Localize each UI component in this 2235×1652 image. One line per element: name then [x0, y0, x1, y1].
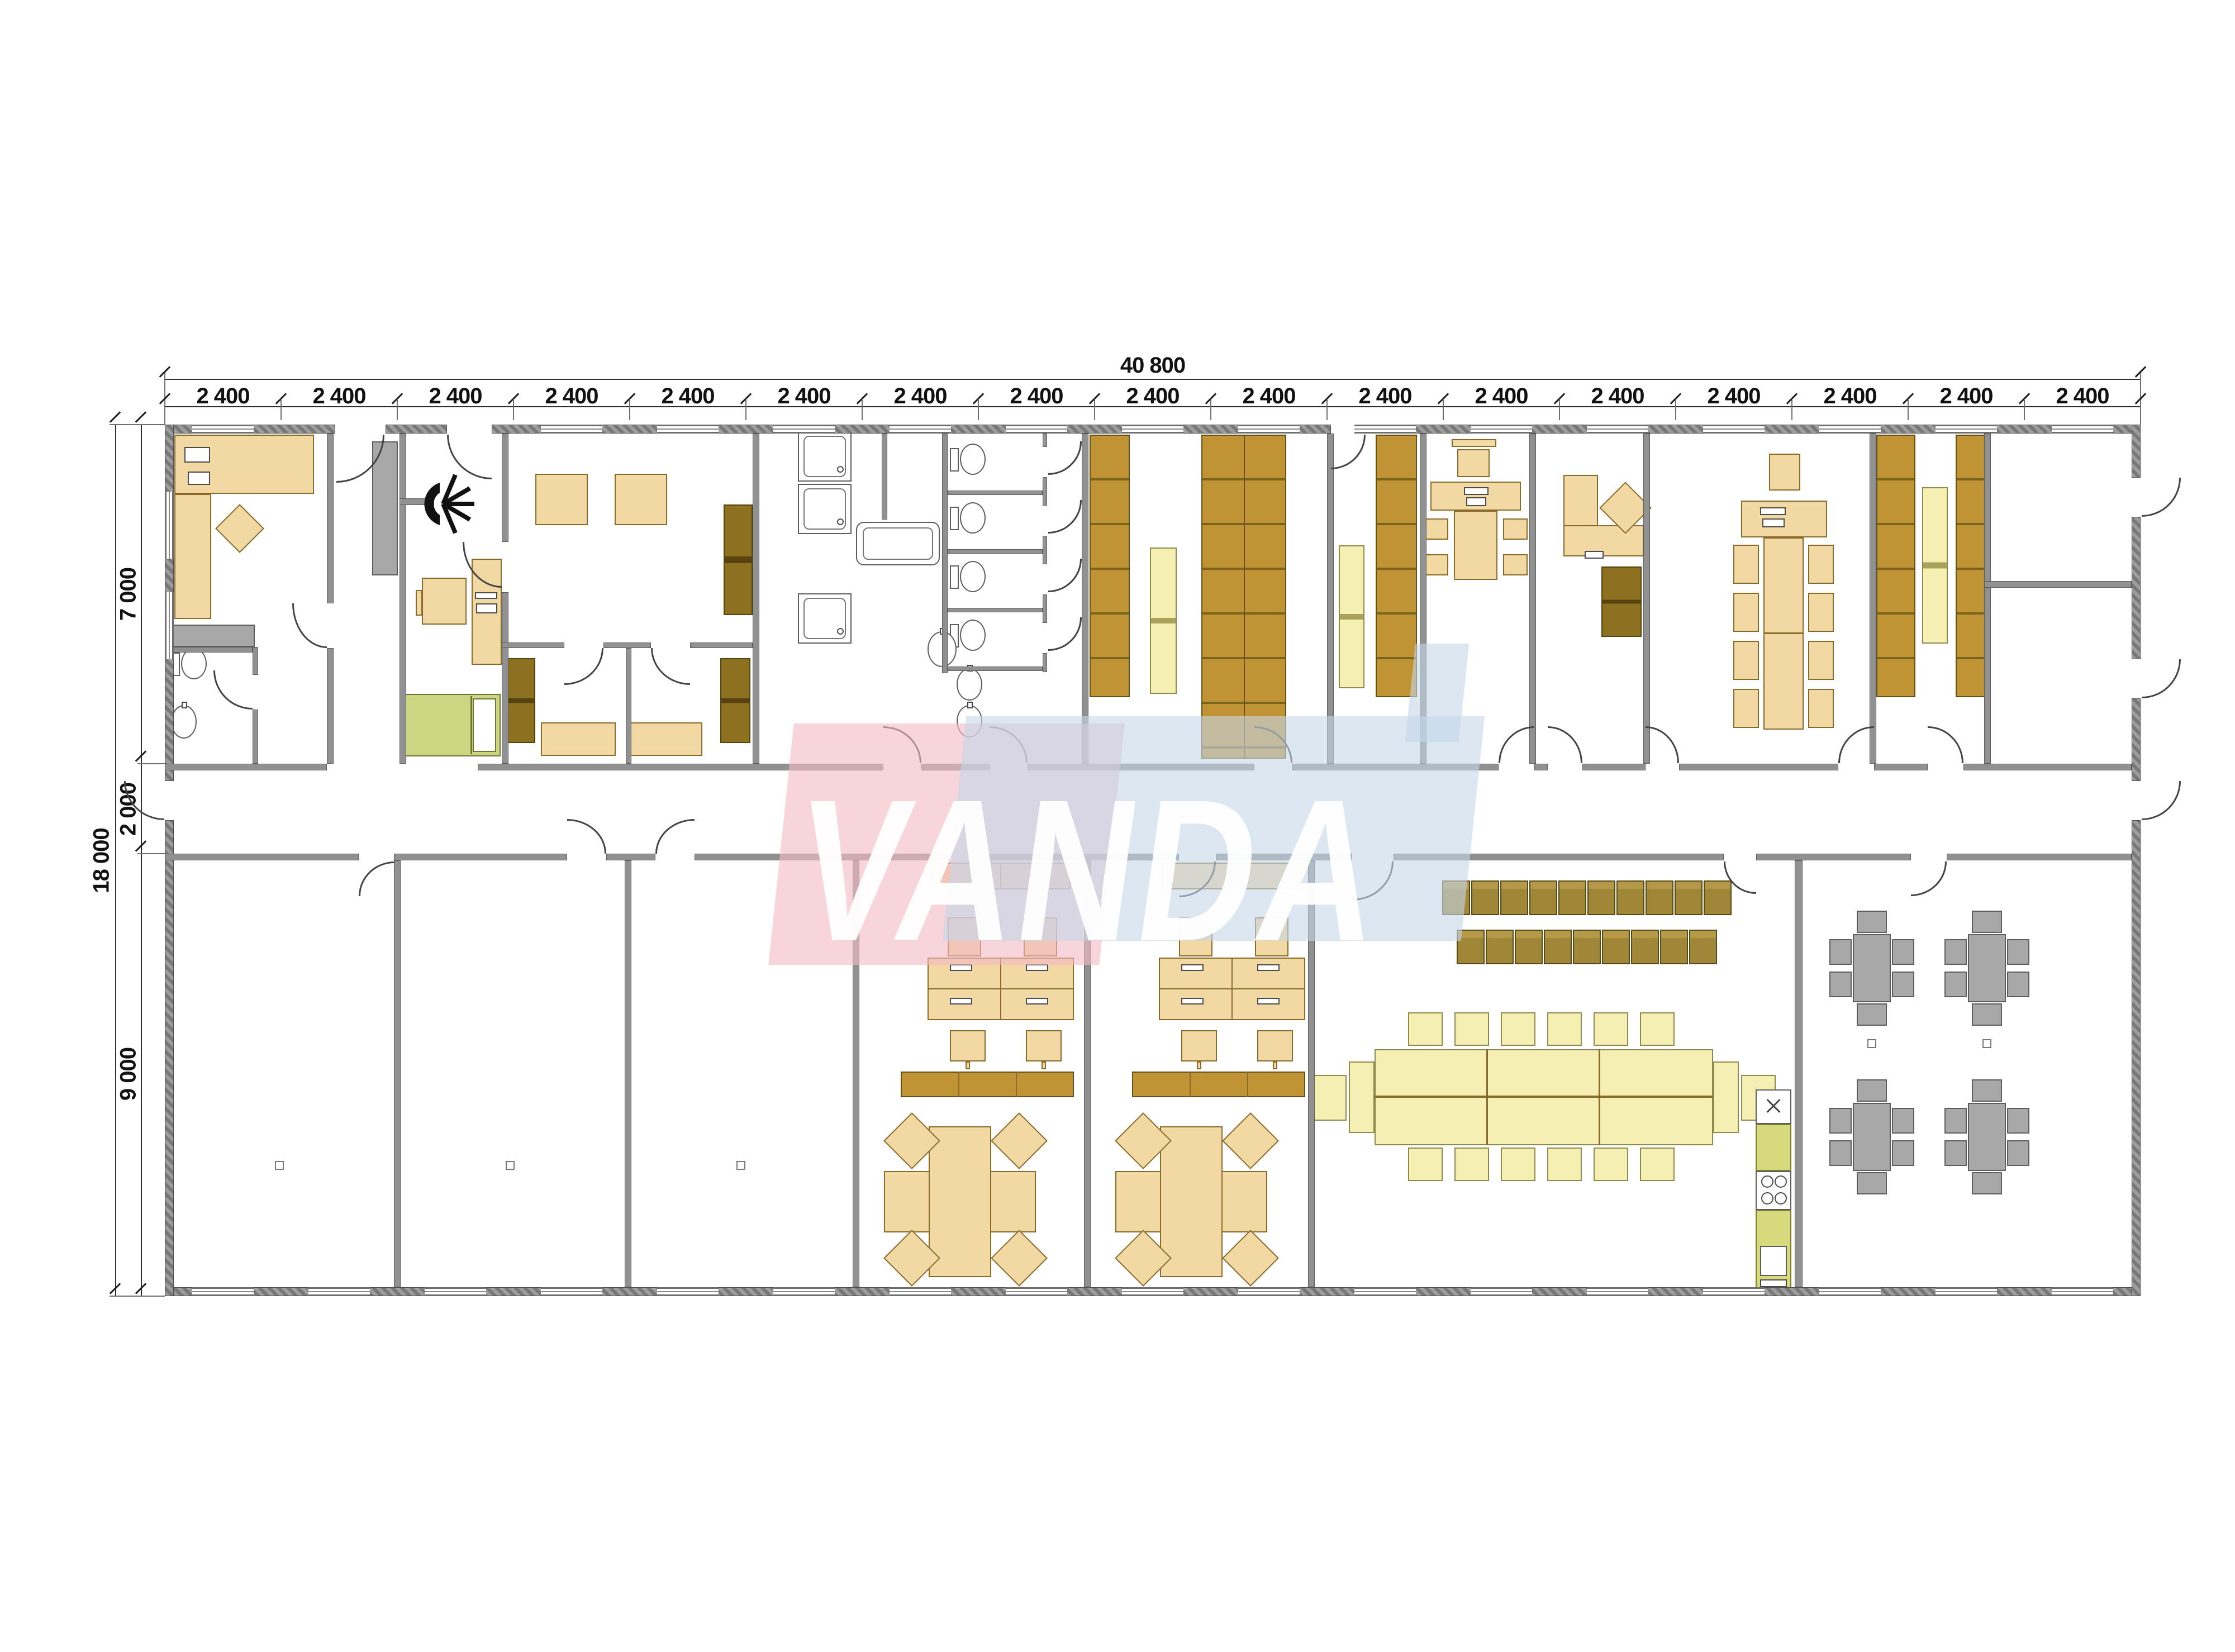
- chair: [1547, 1012, 1582, 1046]
- dimension-left-seg3-label: 9 000: [116, 1018, 141, 1130]
- training-chair: [1573, 930, 1601, 964]
- interior-wall: [327, 648, 334, 764]
- dimension-extension: [513, 400, 514, 420]
- chair: [1892, 1108, 1914, 1134]
- dimension-extension: [164, 400, 165, 420]
- chair: [1829, 972, 1852, 997]
- dimension-module-label: 2 400: [1930, 384, 2003, 406]
- training-chair: [1558, 880, 1586, 915]
- interior-wall: [1870, 434, 1876, 764]
- door-arc: [292, 603, 327, 648]
- dimension-module-label: 2 400: [187, 384, 259, 406]
- shower-drain-icon: [837, 628, 844, 635]
- door-arc: [1911, 861, 1947, 896]
- dimension-extension: [280, 400, 282, 420]
- interior-wall: [948, 549, 1043, 554]
- dimension-left-total-label: 18 000: [89, 805, 115, 917]
- interior-wall: [625, 860, 631, 1287]
- chair: [1857, 1003, 1887, 1026]
- table: [627, 722, 702, 756]
- floor-drain: [1982, 1039, 1991, 1048]
- keyboard-icon: [1466, 497, 1486, 506]
- keyboard-icon: [1585, 551, 1604, 559]
- door-arc: [1048, 500, 1082, 534]
- chair: [991, 1230, 1048, 1287]
- window: [2052, 425, 2113, 434]
- dining-table: [1853, 934, 1891, 1002]
- chair: [1769, 454, 1800, 491]
- monitor-icon: [475, 592, 497, 599]
- interior-wall: [165, 647, 253, 653]
- window: [1587, 1287, 1648, 1296]
- sofa: [1601, 566, 1642, 637]
- toilet-tank: [950, 565, 959, 589]
- interior-wall: [253, 710, 258, 764]
- kitchen-sink: [1760, 1246, 1787, 1276]
- interior-wall: [948, 608, 1043, 612]
- vent-icon: [1760, 1279, 1787, 1287]
- exterior-wall: [165, 820, 174, 1296]
- chair: [1972, 911, 2002, 933]
- training-chair: [1529, 880, 1557, 915]
- chair: [1424, 554, 1448, 575]
- chair: [1944, 1140, 1967, 1166]
- chair: [1857, 1079, 1887, 1102]
- floor-drain: [275, 1161, 284, 1170]
- side-table: [422, 578, 467, 625]
- printer-icon: [184, 447, 210, 463]
- keyboard-icon: [1762, 518, 1785, 527]
- chair: [1547, 1148, 1582, 1181]
- desk-l-bottom: [1563, 525, 1644, 556]
- table: [541, 722, 616, 756]
- dimension-extension: [745, 400, 746, 420]
- floor-drain: [506, 1161, 515, 1170]
- chair: [1501, 1148, 1535, 1181]
- tap-icon: [967, 702, 973, 708]
- toilet-bowl: [960, 502, 986, 534]
- training-chair: [1631, 930, 1659, 964]
- desk-l-side: [174, 494, 211, 619]
- training-chair: [1486, 930, 1514, 964]
- window: [890, 425, 951, 434]
- credenza-divider: [1190, 1072, 1191, 1097]
- window: [657, 425, 719, 434]
- chair: [1944, 939, 1967, 965]
- tap-icon: [182, 702, 187, 708]
- chair: [1222, 1112, 1279, 1169]
- exterior-wall: [2132, 517, 2141, 659]
- chair: [1640, 1148, 1675, 1181]
- dimension-extension: [1210, 400, 1211, 420]
- dimension-module-label: 2 400: [1000, 384, 1073, 406]
- chair: [1457, 449, 1490, 477]
- dimension-ext-topleft: [110, 424, 165, 425]
- dimension-module-label: 2 400: [652, 384, 724, 406]
- credenza-divider: [1016, 1072, 1017, 1097]
- door-arc: [1928, 726, 1963, 763]
- chair: [1312, 1075, 1347, 1121]
- interior-wall: [327, 434, 334, 603]
- bed-fold: [470, 696, 472, 754]
- burner-icon: [1761, 1192, 1773, 1205]
- training-chair: [1646, 880, 1673, 915]
- door-arc: [655, 819, 695, 854]
- burner-icon: [1775, 1175, 1787, 1188]
- window: [1238, 1287, 1300, 1296]
- dining-table: [1968, 934, 2006, 1002]
- interior-wall: [1529, 434, 1536, 764]
- chair: [1222, 1230, 1279, 1287]
- chair: [1640, 1012, 1675, 1046]
- chair: [416, 590, 422, 616]
- chair: [1733, 641, 1759, 680]
- computer-icon: [188, 472, 210, 485]
- interior-wall: [394, 854, 567, 860]
- window: [165, 592, 174, 659]
- window: [1238, 425, 1300, 434]
- exterior-wall: [2132, 425, 2141, 478]
- training-chair: [1689, 930, 1717, 964]
- credenza-divider: [1247, 1072, 1248, 1097]
- dimension-module-label: 2 400: [303, 384, 375, 406]
- dimension-module-label: 2 400: [1233, 384, 1305, 406]
- credenza-divider: [958, 1072, 959, 1097]
- window: [1471, 1287, 1532, 1296]
- pinwheel-desk: [929, 1126, 991, 1277]
- toilet-bowl: [181, 648, 207, 679]
- window: [541, 1287, 602, 1296]
- interior-wall: [1043, 477, 1047, 506]
- chair: [1501, 1012, 1535, 1046]
- chair: [1829, 1140, 1852, 1166]
- interior-wall: [394, 860, 401, 1287]
- chair: [1857, 1172, 1887, 1194]
- dimension-ext-midleft2: [137, 853, 165, 854]
- interior-wall: [1963, 764, 2132, 770]
- dimension-ext-midleft1: [137, 763, 165, 764]
- toilet-tank: [950, 507, 959, 530]
- dimension-module-label: 2 400: [419, 384, 492, 406]
- window: [1122, 425, 1183, 434]
- interior-wall: [1043, 434, 1047, 447]
- dimension-module-label: 2 400: [1465, 384, 1538, 406]
- sofa: [505, 658, 535, 743]
- chair: [1454, 1148, 1489, 1181]
- monitor-icon: [1464, 487, 1489, 495]
- monitor-stand: [1197, 1061, 1201, 1069]
- door-arc: [1548, 726, 1582, 763]
- keyboard-icon: [476, 603, 497, 613]
- dimension-module-label: 2 400: [1697, 384, 1770, 406]
- window: [1587, 425, 1648, 434]
- door-arc: [2142, 659, 2181, 698]
- chair: [2007, 972, 2029, 997]
- interior-wall: [253, 647, 258, 675]
- window: [1006, 425, 1067, 434]
- desk: [1430, 482, 1521, 511]
- window: [1703, 425, 1765, 434]
- chair: [1424, 518, 1448, 540]
- interior-wall: [1874, 764, 1928, 770]
- window: [192, 1287, 254, 1296]
- training-chair: [1544, 930, 1572, 964]
- long-table-end: [1349, 1061, 1375, 1133]
- window: [2052, 1287, 2113, 1296]
- monitor-table: [950, 1030, 986, 1061]
- chair: [1808, 641, 1834, 680]
- window: [1354, 425, 1416, 434]
- dimension-module-label: 2 400: [1349, 384, 1421, 406]
- interior-wall: [1679, 764, 1838, 770]
- training-chair: [1602, 930, 1630, 964]
- dimension-module-label: 2 400: [768, 384, 840, 406]
- exterior-wall: [386, 425, 447, 434]
- shelf-unit: [1376, 435, 1417, 697]
- bench: [1339, 545, 1364, 688]
- monitor-stand: [1042, 1061, 1046, 1069]
- window: [1819, 425, 1881, 434]
- dimension-ext-botleft: [110, 1296, 165, 1297]
- shower-drain-icon: [837, 518, 844, 525]
- chair: [1503, 518, 1528, 540]
- door-arc: [1048, 617, 1082, 651]
- dimension-extension: [1791, 400, 1792, 420]
- door-arc: [1838, 726, 1874, 763]
- chair: [1808, 545, 1834, 584]
- dimension-extension: [1675, 400, 1676, 420]
- chair: [1972, 1079, 2002, 1102]
- dimension-extension: [1559, 400, 1560, 420]
- monitor-table: [1257, 1030, 1293, 1061]
- chair: [2007, 939, 2029, 965]
- bench: [1922, 487, 1948, 644]
- monitor-icon: [1760, 507, 1786, 515]
- interior-wall: [1043, 653, 1047, 672]
- office-chair: [215, 504, 264, 553]
- training-chair: [1704, 880, 1732, 915]
- chair: [1829, 1108, 1852, 1134]
- door-arc: [1646, 726, 1679, 763]
- table-divider: [1375, 1096, 1713, 1098]
- window: [425, 1287, 486, 1296]
- window: [1006, 1287, 1067, 1296]
- window: [890, 1287, 951, 1296]
- door-arc: [1499, 726, 1534, 763]
- chair: [1892, 1140, 1914, 1166]
- dining-table: [1968, 1103, 2006, 1171]
- bed-pillow: [473, 698, 496, 752]
- door-arc: [2142, 478, 2181, 517]
- interior-wall: [1756, 854, 1911, 860]
- dimension-extension: [1908, 400, 1909, 420]
- interior-wall: [1327, 434, 1334, 764]
- dimension-extension: [1443, 400, 1444, 420]
- dimension-extension: [862, 400, 863, 420]
- interior-wall: [690, 642, 753, 648]
- dimension-module-label: 2 400: [884, 384, 957, 406]
- long-table-end: [1713, 1061, 1739, 1133]
- sofa: [724, 504, 753, 615]
- interior-wall: [502, 642, 564, 648]
- dimension-top-total-label: 40 800: [1086, 353, 1220, 378]
- sink: [957, 668, 982, 701]
- dimension-tick: [135, 411, 147, 423]
- exterior-wall: [2132, 698, 2141, 781]
- dimension-extension: [1326, 400, 1328, 420]
- window: [1471, 425, 1532, 434]
- watermark-blue-block: [1405, 644, 1469, 742]
- light-fixture-icon: [411, 470, 478, 537]
- window: [1703, 1287, 1765, 1296]
- table: [535, 474, 588, 525]
- training-chair: [1471, 880, 1499, 915]
- pinwheel-desk: [1160, 1126, 1223, 1277]
- window: [773, 1287, 835, 1296]
- door-arc: [1331, 435, 1366, 469]
- shelf-unit: [1201, 435, 1286, 759]
- door-arc: [567, 819, 606, 854]
- monitor-table: [1026, 1030, 1062, 1061]
- floor-drain: [1867, 1039, 1876, 1048]
- desk-divider: [1159, 988, 1305, 989]
- floor-plan-canvas: 40 800 18 000 7 000 2 000 9 000 VANDA 2 …: [0, 0, 2235, 1652]
- dimension-module-label: 2 400: [535, 384, 608, 406]
- window: [1354, 1287, 1416, 1296]
- interior-wall: [1043, 536, 1047, 564]
- door-arc: [651, 648, 690, 685]
- dimension-extension: [978, 400, 979, 420]
- chair: [1944, 1108, 1967, 1134]
- burner-icon: [1775, 1192, 1787, 1205]
- chair: [2007, 1140, 2029, 1166]
- chair: [1829, 939, 1852, 965]
- bathtub-inner: [863, 527, 933, 560]
- door-arc: [463, 542, 502, 588]
- window: [1936, 425, 1997, 434]
- interior-wall: [1643, 434, 1650, 764]
- monitor-shelf: [1452, 439, 1496, 447]
- monitor-icon: [1181, 998, 1204, 1004]
- sofa: [720, 658, 750, 743]
- window: [657, 1287, 719, 1296]
- dimension-extension: [1094, 400, 1095, 420]
- window: [308, 1287, 370, 1296]
- interior-wall: [948, 666, 1043, 671]
- kitchen-counter: [1756, 1124, 1791, 1171]
- window: [1936, 1287, 1997, 1296]
- dimension-tick: [110, 411, 121, 423]
- monitor-icon: [950, 998, 972, 1004]
- monitor-stand: [1273, 1061, 1277, 1069]
- burner-icon: [1761, 1175, 1773, 1188]
- door-arc: [564, 648, 603, 685]
- dimension-module-label: 2 400: [1814, 384, 1886, 406]
- table: [615, 474, 667, 525]
- training-chair: [1587, 880, 1615, 915]
- watermark-text: VANDA: [786, 781, 1438, 971]
- chair: [1454, 1012, 1489, 1046]
- dining-table: [1853, 1103, 1891, 1171]
- interior-wall: [1534, 764, 1548, 770]
- interior-wall: [165, 764, 327, 770]
- interior-wall: [606, 854, 655, 860]
- interior-wall: [400, 434, 406, 764]
- dimension-module-label: 2 400: [1581, 384, 1654, 406]
- chair: [2007, 1108, 2029, 1134]
- chair: [1408, 1148, 1443, 1181]
- dimension-extension: [2140, 400, 2141, 420]
- interior-wall: [1043, 594, 1047, 623]
- chair: [1892, 939, 1914, 965]
- dimension-extension: [629, 400, 630, 420]
- toilet-tank: [950, 448, 959, 472]
- toilet-bowl: [960, 561, 986, 592]
- stove: [1756, 1171, 1791, 1210]
- interior-wall: [753, 434, 759, 764]
- interior-wall: [1984, 581, 2132, 588]
- door-arc: [1048, 559, 1082, 592]
- interior-wall: [502, 434, 508, 542]
- training-chair: [1660, 930, 1688, 964]
- chair: [1857, 911, 1887, 933]
- monitor-stand: [966, 1061, 970, 1069]
- chair: [1808, 689, 1834, 728]
- training-chair: [1500, 880, 1528, 915]
- window: [1819, 1287, 1881, 1296]
- chair: [991, 1112, 1048, 1169]
- dimension-left-seg1-label: 7 000: [116, 539, 141, 650]
- window: [165, 492, 174, 559]
- chair: [1733, 689, 1759, 728]
- chair: [1972, 1003, 2002, 1026]
- monitor-table: [1181, 1030, 1217, 1061]
- door-arc: [2142, 781, 2181, 820]
- dimension-extension: [397, 400, 398, 420]
- toilet-bowl: [960, 620, 986, 651]
- interior-wall: [1795, 860, 1803, 1287]
- door-arc: [213, 670, 253, 710]
- table-divider: [1763, 632, 1804, 634]
- interior-wall: [502, 592, 508, 764]
- chair: [1594, 1012, 1628, 1046]
- exterior-wall: [2132, 820, 2141, 1296]
- bench: [1150, 548, 1177, 694]
- desk-divider: [928, 988, 1074, 989]
- monitor-icon: [1026, 998, 1048, 1004]
- interior-wall: [1947, 854, 2132, 860]
- dimension-module-label: 2 400: [2046, 384, 2119, 406]
- training-chair: [1616, 880, 1644, 915]
- interior-wall: [942, 434, 948, 673]
- interior-wall: [1582, 764, 1646, 770]
- chair: [1733, 545, 1759, 584]
- shelf-unit: [1090, 435, 1130, 697]
- chair: [1408, 1012, 1443, 1046]
- interior-wall: [1082, 434, 1088, 764]
- floor-drain: [736, 1161, 745, 1170]
- chair: [1808, 593, 1834, 632]
- chair: [1503, 554, 1528, 575]
- chair: [1892, 972, 1914, 997]
- window: [1122, 1287, 1183, 1296]
- credenza: [901, 1072, 1074, 1097]
- shower-drain-icon: [837, 466, 844, 473]
- toilet-bowl: [960, 444, 986, 475]
- interior-wall: [882, 434, 887, 520]
- training-chair: [1515, 930, 1543, 964]
- monitor-icon: [1257, 998, 1280, 1004]
